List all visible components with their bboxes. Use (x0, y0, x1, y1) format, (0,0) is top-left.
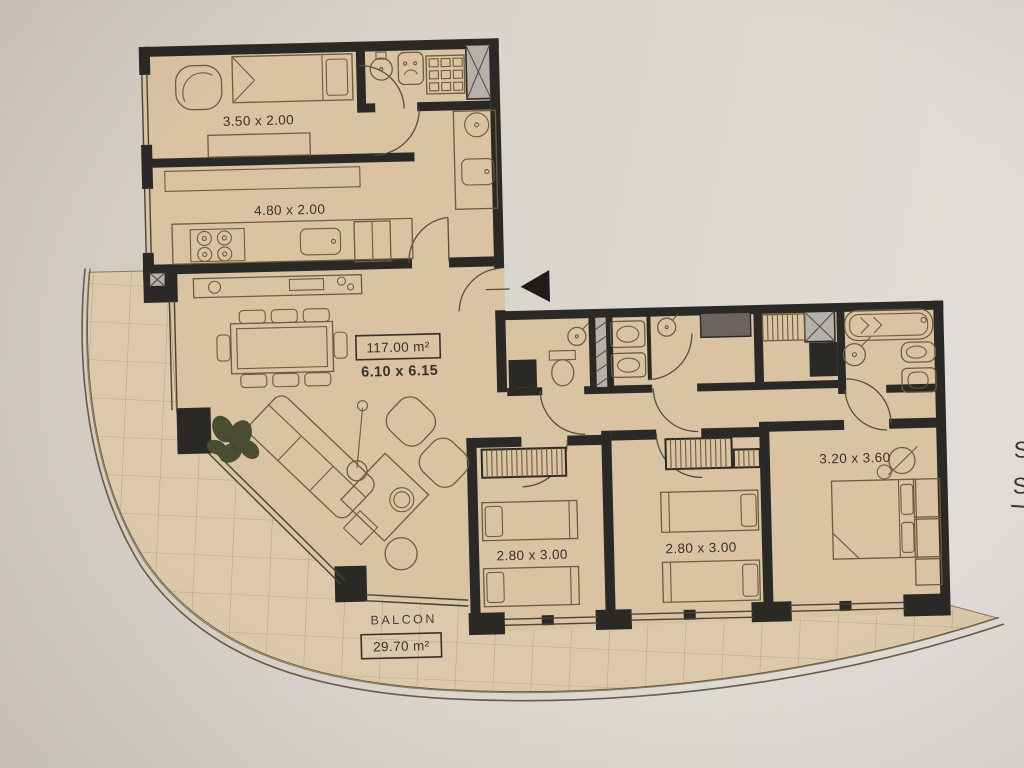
photo-vignette (0, 0, 1024, 768)
floor-plan-photo: 3.50 x 2.00 4.80 x 2.00 117.00 m² 6.10 x… (0, 0, 1024, 768)
floor-plan-svg: 3.50 x 2.00 4.80 x 2.00 117.00 m² 6.10 x… (0, 0, 1024, 768)
